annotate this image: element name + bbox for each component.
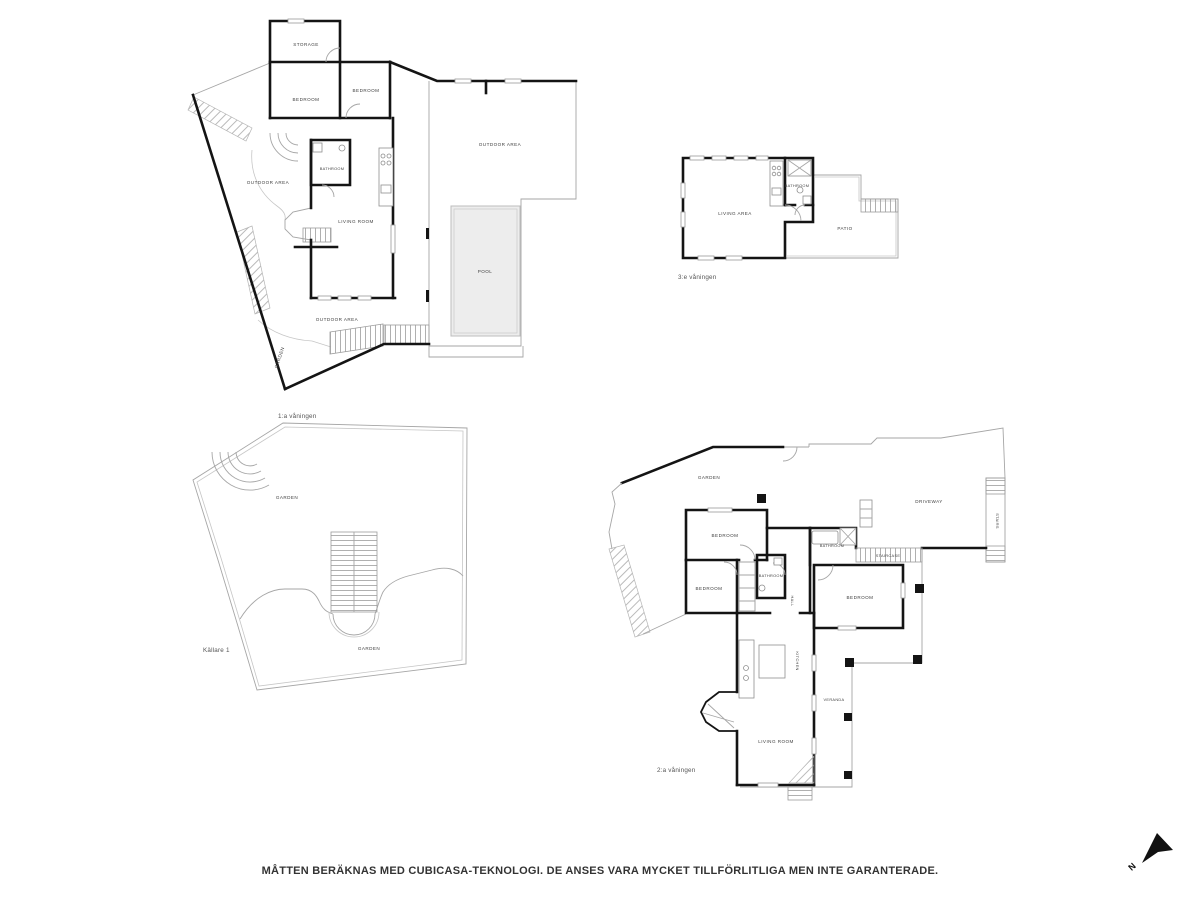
stove-burner xyxy=(772,172,776,176)
room-label-bathroom-b: BATHROOM xyxy=(820,543,845,548)
stove-burner xyxy=(772,166,776,170)
veranda-post xyxy=(845,658,854,667)
toilet xyxy=(759,585,765,591)
north-compass: N xyxy=(1126,833,1173,873)
garden-edge xyxy=(252,150,286,220)
sink xyxy=(744,666,749,671)
wall-segment xyxy=(426,228,429,239)
plan-floor2: GARDEN DRIVEWAY STAIRS STAIRCASE BEDROOM… xyxy=(609,428,1005,800)
boundary xyxy=(193,63,270,95)
bay-steps xyxy=(303,228,331,242)
room-label-living-room: LIVING ROOM xyxy=(758,739,794,744)
window xyxy=(358,296,371,300)
wall xyxy=(270,21,340,118)
room-label-bedroom-a: BEDROOM xyxy=(712,533,739,538)
sink xyxy=(774,558,782,565)
exterior-steps xyxy=(788,787,812,800)
floor-label-basement: Källare 1 xyxy=(203,647,230,654)
closet xyxy=(739,562,755,611)
door-arc xyxy=(724,562,737,575)
sink xyxy=(381,185,391,193)
room-label-staircase: STAIRCASE xyxy=(876,553,901,558)
door-arc xyxy=(346,104,360,118)
room-label-living-room: LIVING ROOM xyxy=(338,219,374,224)
room-label-kitchen: KITCHEN xyxy=(795,651,800,670)
room-label-garden-upper: GARDEN xyxy=(276,495,298,500)
room-label-driveway: DRIVEWAY xyxy=(915,499,943,504)
planter xyxy=(860,500,872,527)
retaining-steps xyxy=(609,545,650,637)
sink xyxy=(744,676,749,681)
plan-floor1: STORAGE BEDROOM BEDROOM BATHROOM OUTDOOR… xyxy=(188,19,576,420)
house-cutout-curve xyxy=(375,568,463,614)
door-arc xyxy=(740,545,755,560)
door-arc xyxy=(326,48,340,62)
corner-hatch xyxy=(789,756,814,783)
garden-boundary-inner xyxy=(197,427,463,686)
room-label-bathroom: BATHROOM xyxy=(785,183,810,188)
terrace-steps xyxy=(237,226,270,314)
floor-label-floor3: 3:e våningen xyxy=(678,273,717,281)
stove-burner xyxy=(387,161,391,165)
stove-burner xyxy=(381,161,385,165)
window xyxy=(812,738,816,754)
room-label-outdoor-ne: OUTDOOR AREA xyxy=(479,142,522,147)
window xyxy=(734,156,748,160)
window xyxy=(758,783,778,787)
outdoor-stairs xyxy=(384,325,429,344)
toilet xyxy=(803,196,811,204)
step-fan-arc xyxy=(278,133,298,153)
window xyxy=(338,296,351,300)
window xyxy=(505,79,521,83)
terrace-steps xyxy=(188,97,252,141)
patio-stairs xyxy=(861,199,898,212)
room-label-garden: GARDEN xyxy=(698,475,720,480)
veranda-post xyxy=(844,713,852,721)
window xyxy=(288,19,304,23)
room-label-garden-lower: GARDEN xyxy=(358,646,380,651)
stairs-treads xyxy=(986,546,1005,562)
stove-burner xyxy=(777,166,781,170)
room-label-veranda: VERANDA xyxy=(824,697,845,702)
window xyxy=(726,256,742,260)
patio-door xyxy=(391,225,395,253)
window xyxy=(838,626,856,630)
disclaimer-text: MÅTTEN BERÄKNAS MED CUBICASA-TEKNOLOGI. … xyxy=(262,864,939,877)
plan-basement: GARDEN GARDEN Källare 1 xyxy=(193,423,467,690)
window xyxy=(901,583,905,598)
door-arc xyxy=(322,185,334,197)
sink xyxy=(772,188,781,195)
floor-label-floor2: 2:a våningen xyxy=(657,766,696,774)
floorplan-drawing: STORAGE BEDROOM BEDROOM BATHROOM OUTDOOR… xyxy=(0,0,1200,900)
window xyxy=(690,156,704,160)
window xyxy=(698,256,714,260)
room-label-bedroom-b: BEDROOM xyxy=(696,586,723,591)
toilet xyxy=(313,143,322,152)
house-cutout-curve xyxy=(329,612,379,637)
room-label-pool: POOL xyxy=(478,269,493,274)
floorplan-page: STORAGE BEDROOM BEDROOM BATHROOM OUTDOOR… xyxy=(0,0,1200,900)
site-wall xyxy=(285,344,429,389)
kitchen-island xyxy=(759,645,785,678)
room-label-stairs: STAIRS xyxy=(995,513,1000,529)
plan-floor3: LIVING AREA BATHROOM PATIO 3:e våningen xyxy=(678,156,898,281)
window xyxy=(681,183,685,198)
window xyxy=(318,296,331,300)
step-fan-arc xyxy=(286,133,298,145)
stove-burner xyxy=(387,154,391,158)
window xyxy=(812,695,816,711)
floor-label-floor1: 1:a våningen xyxy=(278,412,317,420)
room-label-storage: STORAGE xyxy=(293,42,319,47)
house-cutout-curve xyxy=(240,589,333,619)
window xyxy=(812,655,816,671)
boundary xyxy=(429,346,523,357)
window xyxy=(455,79,471,83)
pillar xyxy=(757,494,766,503)
room-label-bedroom-b: BEDROOM xyxy=(353,88,380,93)
garden-edge xyxy=(643,614,686,634)
outdoor-stairs xyxy=(330,324,383,354)
wall-segment xyxy=(426,290,429,302)
window xyxy=(681,212,685,227)
window xyxy=(708,508,732,512)
corner-arc xyxy=(228,452,261,474)
door-arc xyxy=(783,447,797,461)
site-wall xyxy=(193,95,285,389)
veranda-post xyxy=(913,655,922,664)
stairs-treads xyxy=(986,478,1005,494)
garden-edge xyxy=(609,483,622,549)
room-label-outdoor-south: OUTDOOR AREA xyxy=(316,317,359,322)
veranda-post xyxy=(915,584,924,593)
room-label-bedroom-c: BEDROOM xyxy=(847,595,874,600)
north-arrow-icon xyxy=(1142,833,1173,863)
window xyxy=(756,156,768,160)
room-label-living-area: LIVING AREA xyxy=(718,211,752,216)
garden-boundary xyxy=(193,423,467,690)
bay-tower-wall xyxy=(701,692,737,731)
wall xyxy=(390,62,576,81)
corner-arc xyxy=(236,452,257,466)
room-label-bathroom-a: BATHROOM xyxy=(759,573,784,578)
room-label-bathroom: BATHROOM xyxy=(320,166,345,171)
stove-burner xyxy=(777,172,781,176)
room-label-hall: HALL xyxy=(790,596,795,607)
bay-tower-lines xyxy=(703,704,734,728)
veranda-post xyxy=(844,771,852,779)
door-arc xyxy=(818,565,833,580)
room-label-patio: PATIO xyxy=(837,226,852,231)
driveway-boundary xyxy=(809,428,1005,478)
corner-arc xyxy=(220,452,265,482)
stove-burner xyxy=(381,154,385,158)
room-label-bedroom-a: BEDROOM xyxy=(293,97,320,102)
patio-boundary-inner xyxy=(787,177,896,256)
north-label: N xyxy=(1126,861,1138,873)
sink xyxy=(339,145,345,151)
room-label-outdoor-west: OUTDOOR AREA xyxy=(247,180,290,185)
window xyxy=(712,156,726,160)
